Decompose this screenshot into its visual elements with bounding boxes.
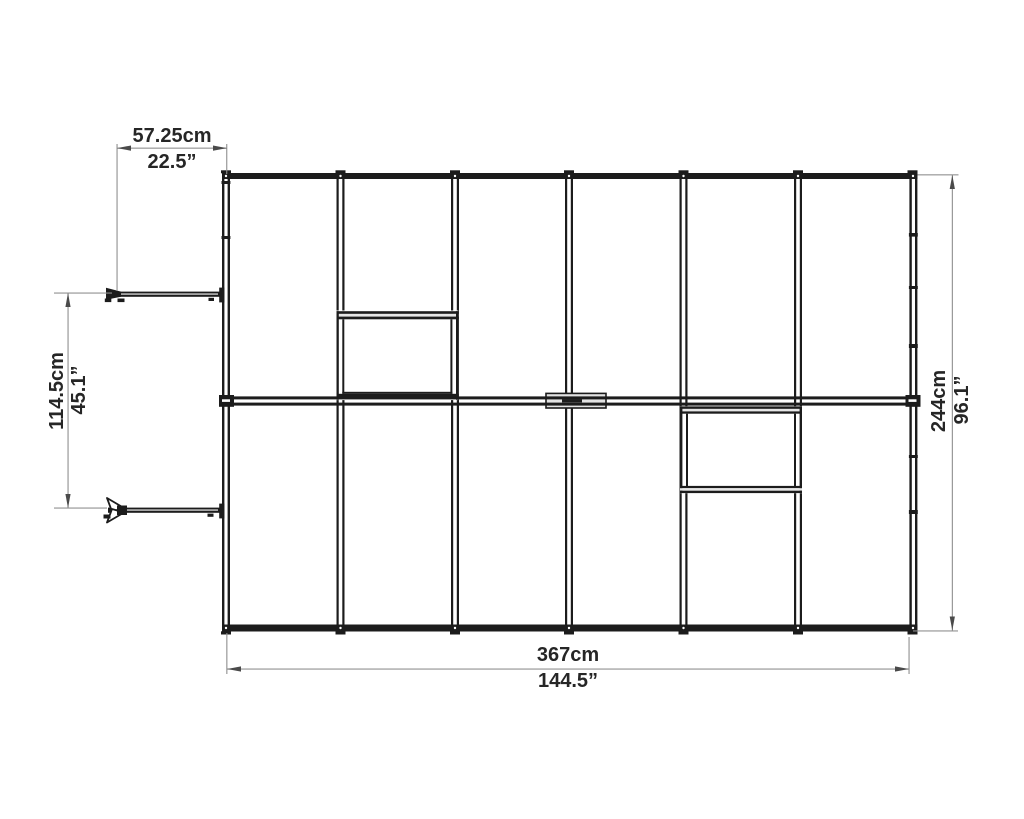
door-top-hinge <box>106 288 121 300</box>
label-depth-cm: 244cm <box>929 370 949 432</box>
roof-vent-right <box>680 406 802 493</box>
bottom-wall-feet <box>221 631 918 634</box>
door-top-wall-plate <box>219 288 224 303</box>
top-wall-connectors <box>221 170 918 173</box>
wall-joint-ticks <box>222 181 918 514</box>
greenhouse-plan-linework <box>0 0 1024 819</box>
door-bottom-wall-plate <box>219 504 224 519</box>
roof-vent-left <box>337 311 459 401</box>
label-width-inch: 144.5” <box>538 671 598 691</box>
label-door-opening-cm: 114.5cm <box>47 352 67 430</box>
ridge-beam <box>219 393 921 408</box>
label-door-leaf-inch: 22.5” <box>148 152 197 172</box>
label-door-leaf-cm: 57.25cm <box>133 126 212 146</box>
label-depth-inch: 96.1” <box>952 376 972 425</box>
dimension-drawing: 57.25cm 22.5” 114.5cm 45.1” 244cm 96.1” … <box>0 0 1024 819</box>
label-width-cm: 367cm <box>537 645 599 665</box>
door-leaf-top <box>105 288 225 303</box>
door-leaf-bottom <box>104 498 225 523</box>
dimension-lines <box>54 144 959 674</box>
label-door-opening-inch: 45.1” <box>69 366 89 415</box>
